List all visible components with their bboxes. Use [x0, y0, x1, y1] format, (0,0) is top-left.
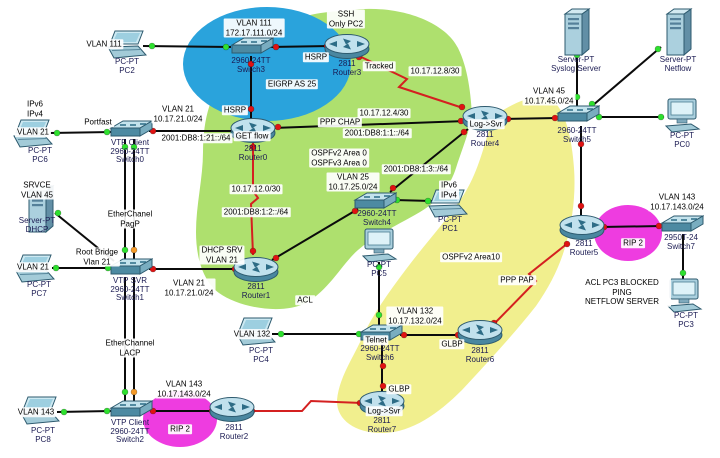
note-srvce-vlan-45: SRVCE VLAN 45 — [19, 181, 55, 200]
router-icon — [324, 33, 370, 61]
note-log-svr: Log->Svr — [366, 406, 403, 416]
note-vlan-111: VLAN 111 — [84, 39, 123, 49]
switch-icon — [107, 118, 153, 142]
note-eigrp-as-25: EIGRP AS 25 — [266, 79, 318, 89]
note-hsrp: HSRP — [303, 52, 329, 62]
device-switch0[interactable] — [107, 118, 153, 144]
device-router3[interactable] — [324, 33, 370, 63]
note-vlan-143-10-17-143-0-24: VLAN 143 10.17.143.0/24 — [155, 380, 212, 399]
note-2001-db8-1-3-64: 2001:DB8:1:3::/64 — [382, 164, 451, 174]
note-10-17-12-8-30: 10.17.12.8/30 — [409, 66, 462, 76]
note-get-flow: GET flow — [234, 131, 271, 141]
desktop-icon — [360, 228, 398, 264]
note-vlan-21-10-17-21-0-24: VLAN 21 10.17.21.0/24 — [163, 279, 216, 298]
note-10-17-12-0-30: 10.17.12.0/30 — [230, 184, 283, 194]
note-ospfv2-area-0-ospfv3-area-0: OSPFv2 Area 0 OSPFv3 Area 0 — [309, 149, 369, 168]
note-etherchanel-pagp: EtherChanel PagP — [106, 210, 154, 229]
note-2001-db8-1-2-64: 2001:DB8:1:2::/64 — [222, 207, 291, 217]
note-glbp: GLBP — [386, 384, 411, 394]
link-switch5-netflow[interactable] — [592, 47, 661, 106]
note-vlan-132: VLAN 132 — [232, 329, 272, 339]
rip-magenta-ellipse-bottom — [143, 391, 217, 447]
note-ppp-chap: PPP CHAP — [318, 117, 362, 127]
note-2001-db8-1-1-64: 2001:DB8:1:1::/64 — [343, 128, 412, 138]
note-vlan-21: VLAN 21 — [15, 127, 51, 137]
topology-canvas: PC-PT PC22960-24TT Switch32811 Router3Se… — [0, 0, 720, 458]
note-vlan-111-172-17-111-0-24: VLAN 111 172.17.111.0/24 — [224, 19, 285, 38]
note-rip-2: RIP 2 — [168, 424, 192, 434]
device-pc5[interactable] — [360, 228, 398, 266]
note-vlan-143-10-17-143-0-24: VLAN 143 10.17.143.0/24 — [648, 193, 705, 212]
note-10-17-12-4-30: 10.17.12.4/30 — [358, 108, 411, 118]
device-switch3[interactable] — [228, 35, 274, 61]
note-acl-pc3-blocked-ping-netflow-s: ACL PC3 BLOCKED PING NETFLOW SERVER — [573, 278, 671, 307]
link-pc2-switch3[interactable] — [143, 46, 231, 47]
note-log-svr: Log->Svr — [468, 119, 505, 129]
device-router5[interactable] — [559, 214, 605, 244]
note-2001-db8-1-21-64: 2001:DB8:1:21::/64 — [160, 133, 233, 143]
note-root-bridge-vlan-21: Root Bridge Vlan 21 — [74, 248, 120, 267]
device-switch7[interactable] — [658, 213, 704, 239]
note-portfast: Portfast — [82, 117, 114, 127]
switch-icon — [228, 35, 274, 59]
note-vlan-21-10-17-21-0-24: VLAN 21 10.17.21.0/24 — [152, 105, 205, 124]
device-switch2[interactable] — [107, 398, 153, 424]
note-ipv6-ipv4: IPv6 IPv4 — [25, 100, 45, 119]
router-icon — [209, 396, 255, 424]
device-switch5[interactable] — [554, 103, 600, 129]
note-vlan-132-10-17-132-0-24: VLAN 132 10.17.132.0/24 — [386, 307, 443, 326]
device-router2[interactable] — [209, 396, 255, 426]
note-vlan-25-10-17-25-0-24: VLAN 25 10.17.25.0/24 — [327, 173, 380, 192]
note-vlan-45-10-17-45-0-24: VLAN 45 10.17.45.0/24 — [523, 87, 576, 106]
note-vlan-21: VLAN 21 — [15, 262, 51, 272]
note-ssh-only-pc2: SSH Only PC2 — [327, 10, 365, 29]
switch-icon — [107, 398, 153, 422]
note-etherchannel-lacp: EtherChannel LACP — [104, 339, 157, 358]
link-router5-switch7[interactable] — [601, 226, 662, 227]
note-acl: ACL — [295, 295, 315, 305]
switch-icon — [554, 103, 600, 127]
device-switch4[interactable] — [351, 190, 397, 216]
device-syslog-server[interactable] — [561, 8, 591, 58]
note-glbp: GLBP — [439, 339, 464, 349]
note-tracked: Tracked — [363, 61, 396, 71]
note-ipv6-ipv4: IPv6 IPv4 — [439, 181, 459, 200]
note-telnet: Telnet — [363, 335, 388, 345]
note-rip-2: RIP 2 — [621, 238, 645, 248]
note-vlan-143: VLAN 143 — [16, 407, 56, 417]
device-netflow-server[interactable] — [663, 8, 693, 58]
note-hsrp: HSRP — [222, 105, 248, 115]
switch-icon — [351, 190, 397, 214]
router-icon — [559, 214, 605, 242]
switch-icon — [658, 213, 704, 237]
note-ospfv2-area10: OSPFv2 Area10 — [440, 252, 502, 262]
note-dhcp-srv-vlan-21: DHCP SRV VLAN 21 — [199, 246, 244, 265]
device-pc0[interactable] — [663, 98, 701, 136]
desktop-icon — [663, 98, 701, 134]
server-icon — [561, 8, 591, 56]
server-icon — [663, 8, 693, 56]
note-ppp-pap: PPP PAP — [498, 275, 536, 285]
